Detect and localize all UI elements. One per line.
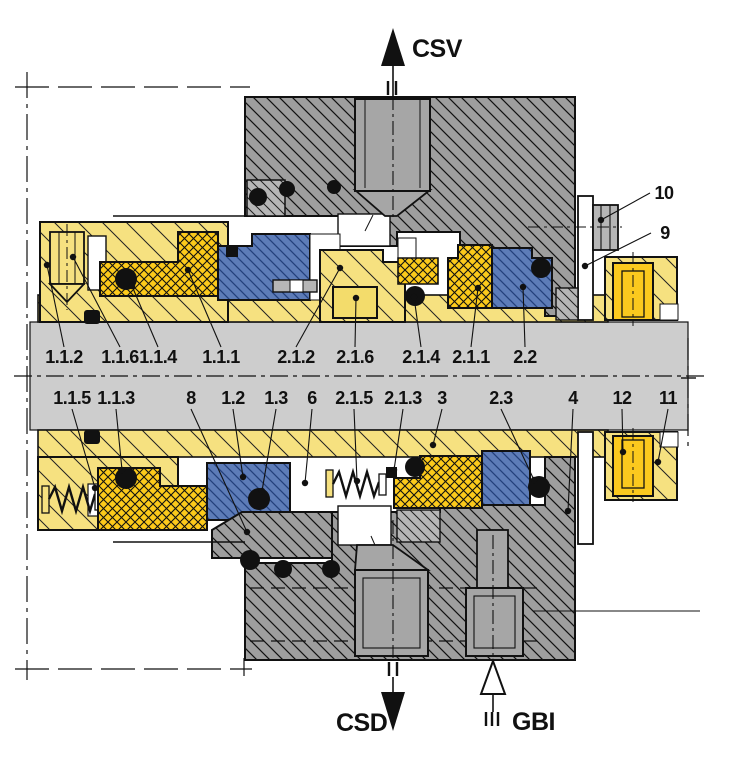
part-label-2.2: 2.2: [513, 347, 537, 367]
part-label-2.1.4: 2.1.4: [402, 347, 440, 367]
leader-dot: [129, 283, 135, 289]
channel: [398, 238, 416, 258]
part-label-3: 3: [437, 388, 447, 408]
leader-dot: [185, 267, 191, 273]
o-ring: [322, 560, 340, 578]
seat-upper-right: [492, 248, 552, 308]
spring-cap: [326, 470, 333, 497]
part-label-12: 12: [612, 388, 632, 408]
gbi-connection-ticks: [486, 712, 498, 726]
seal-face-upper-right: [448, 245, 492, 308]
leader-dot: [565, 508, 571, 514]
housing-insert-lower: [397, 510, 440, 542]
o-ring: [327, 180, 341, 194]
leader-dot: [411, 294, 417, 300]
part-label-6: 6: [307, 388, 317, 408]
spring-cap: [42, 486, 49, 513]
leader-dot: [475, 285, 481, 291]
o-ring: [274, 560, 292, 578]
leader-dot: [92, 485, 98, 491]
leader-dot: [70, 254, 76, 260]
csd-connection-ticks: [389, 662, 397, 676]
o-ring: [279, 181, 295, 197]
port-label-csv: CSV: [412, 35, 463, 63]
seat-lower-right: [482, 451, 530, 505]
port-label-csd: CSD: [336, 709, 387, 737]
csd-port-cavity: [338, 506, 391, 545]
spacer-upper-right: [556, 288, 578, 320]
drive-pin-gap: [290, 280, 303, 292]
leader-dot: [337, 265, 343, 271]
part-label-1.3: 1.3: [264, 388, 288, 408]
part-label-1.1.6: 1.1.6: [101, 347, 139, 367]
csv-port-cavity: [338, 214, 390, 246]
o-ring: [115, 467, 137, 489]
part-label-10: 10: [654, 183, 674, 203]
part-label-2.1.1: 2.1.1: [452, 347, 490, 367]
clamp-plate-lower: [578, 432, 593, 544]
clamp-ring-lower: [212, 512, 332, 558]
leader-dot: [531, 477, 537, 483]
part-label-1.1.1: 1.1.1: [202, 347, 240, 367]
leader-dot: [353, 295, 359, 301]
part-label-2.1.2: 2.1.2: [277, 347, 315, 367]
leader-dot: [44, 262, 50, 268]
part-label-1.1.2: 1.1.2: [45, 347, 83, 367]
leader-dot: [520, 284, 526, 290]
spring-plate: [379, 474, 386, 495]
leader-dot: [240, 474, 246, 480]
part-label-2.1.3: 2.1.3: [384, 388, 422, 408]
part-label-4: 4: [568, 388, 578, 408]
csv-arrow-up-icon: [381, 28, 405, 66]
part-label-11: 11: [659, 388, 678, 408]
leader-dot: [354, 478, 360, 484]
gbi-port: [481, 661, 505, 726]
leader-dot: [119, 467, 125, 473]
part-label-9: 9: [660, 223, 670, 243]
gland-notch: [660, 304, 678, 320]
clamp-plate-upper: [578, 196, 593, 320]
gbi-arrow-up-outline-icon: [481, 661, 505, 694]
seal-diagram-page: 1.1.21.1.61.1.41.1.12.1.22.1.62.1.42.1.1…: [0, 0, 731, 768]
leader-dot: [259, 488, 265, 494]
spring-retainer-mid: [333, 287, 377, 318]
leader-dot: [655, 459, 661, 465]
part-label-2.1.6: 2.1.6: [336, 347, 374, 367]
o-ring: [249, 188, 267, 206]
leader-dot: [391, 467, 397, 473]
part-label-1.2: 1.2: [221, 388, 245, 408]
leader-dot: [430, 442, 436, 448]
o-ring: [240, 550, 260, 570]
csv-connection-ticks: [388, 81, 396, 95]
o-ring: [226, 246, 238, 257]
part-label-1.1.3: 1.1.3: [97, 388, 135, 408]
part-label-8: 8: [186, 388, 196, 408]
o-ring: [531, 258, 551, 278]
part-label-1.1.5: 1.1.5: [53, 388, 91, 408]
part-label-2.1.5: 2.1.5: [335, 388, 373, 408]
leader-dot: [582, 263, 588, 269]
face-ring-small-upper: [398, 258, 438, 284]
csd-plug: [355, 570, 428, 656]
leader-dot: [302, 480, 308, 486]
seal-face-lower-left: [98, 468, 207, 530]
o-ring: [405, 457, 425, 477]
port-label-gbi: GBI: [512, 708, 555, 736]
leader-dot: [620, 449, 626, 455]
seal-cross-section-diagram: 1.1.21.1.61.1.41.1.12.1.22.1.62.1.42.1.1…: [0, 0, 731, 768]
leader-dot: [598, 217, 604, 223]
o-ring: [84, 430, 100, 444]
o-ring: [84, 310, 100, 324]
part-label-2.3: 2.3: [489, 388, 513, 408]
part-label-1.1.4: 1.1.4: [139, 347, 177, 367]
csv-port: [381, 28, 405, 96]
leader-dot: [244, 529, 250, 535]
